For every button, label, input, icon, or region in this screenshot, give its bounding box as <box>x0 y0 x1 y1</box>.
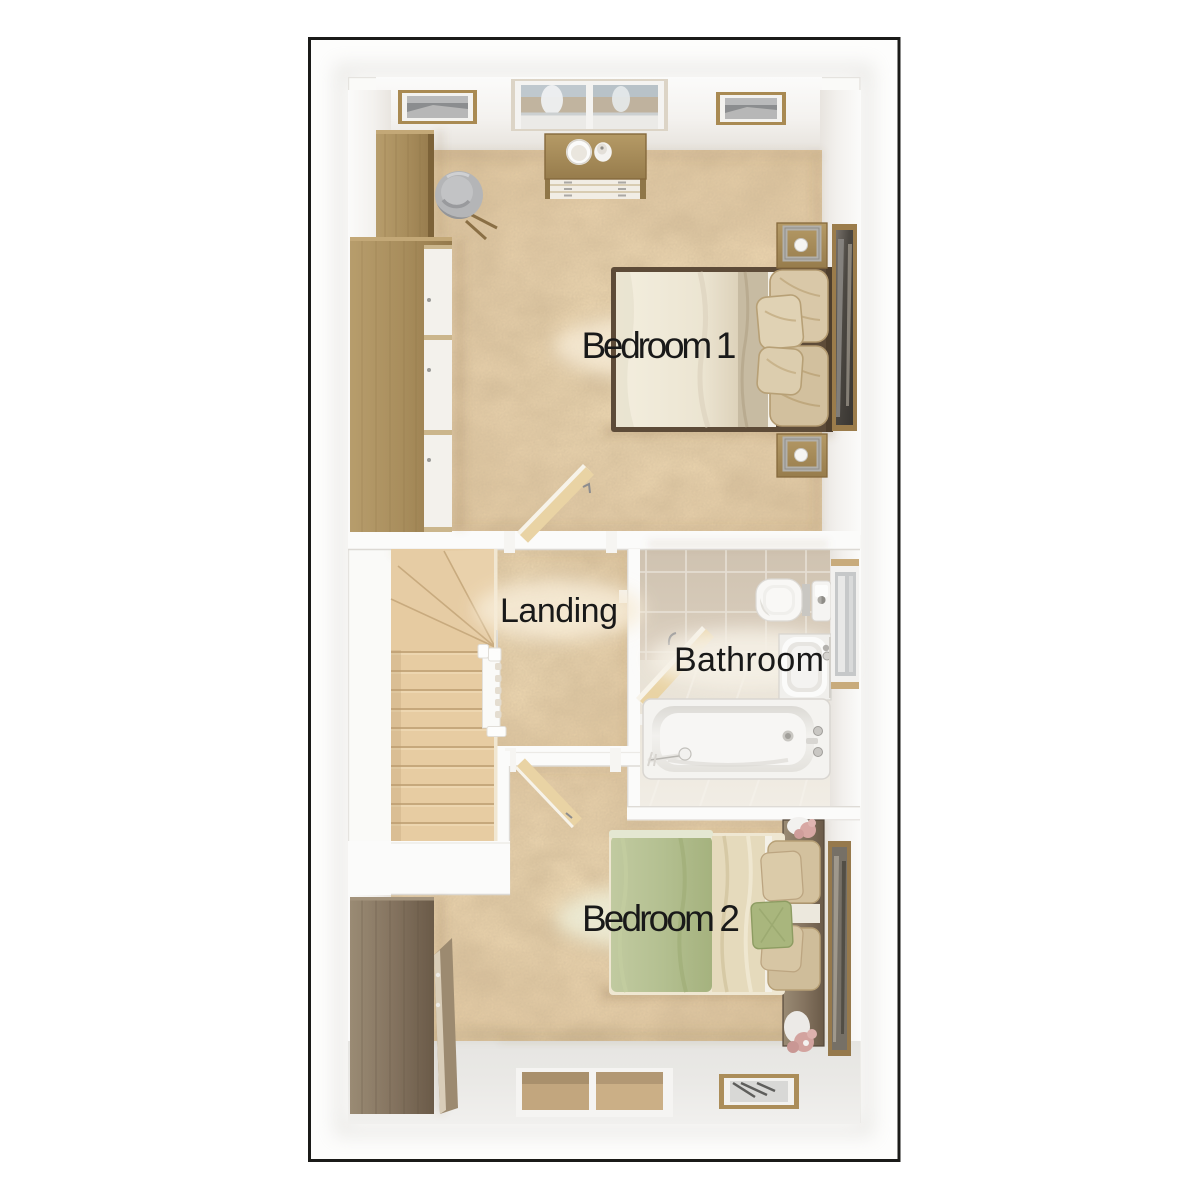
svg-text:Bedroom 2: Bedroom 2 <box>582 898 740 939</box>
svg-text:Landing: Landing <box>500 592 618 630</box>
svg-text:Bedroom 1: Bedroom 1 <box>582 325 737 366</box>
svg-text:Bathroom: Bathroom <box>674 641 824 679</box>
